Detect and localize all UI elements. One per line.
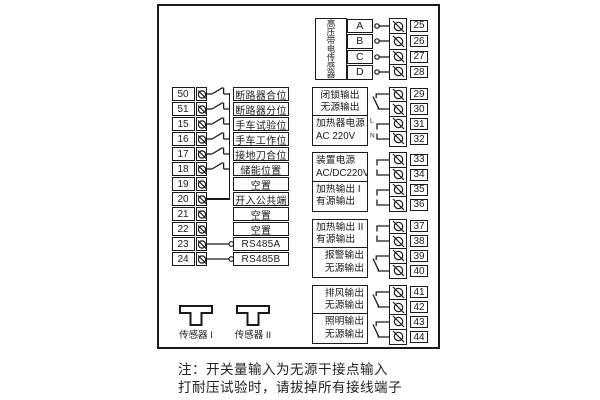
screw-terminal-icon [390,330,406,344]
output-label-line: 照明输出 [325,316,364,329]
terminal-number: 40 [410,265,428,277]
input-function-label: RS485B [233,252,289,266]
sensor-label: 传感器 II [231,327,275,341]
sensor-wire-icon [369,35,390,47]
input-function-label: 接地刀合位 [233,147,289,161]
screw-terminal-icon [390,132,406,146]
output-label-box: 报警输出无源输出 [312,247,368,278]
screw-terminal-icon [390,183,406,198]
screw-terminal-icon [390,168,406,183]
rs485-wire-icon [206,253,237,265]
wire-label: N [370,133,375,140]
screw-terminal-icon [390,315,406,330]
output-label-line: 无源输出 [325,300,364,313]
terminal-number: 30 [410,103,428,115]
screw-terminal-icon [390,153,406,168]
output-label-line: 加热器电源 [316,118,365,131]
rs485-wire-icon [206,238,237,250]
sensor-symbol-icon [179,305,213,326]
terminal-screw-column [389,18,407,80]
sensor-wire-icon [369,20,390,32]
screw-terminal-icon [390,234,406,249]
wire-hook-icon [368,152,389,183]
output-label-box: 加热器电源AC 220V [312,115,368,146]
output-label-box: 排风输出无源输出 [312,285,368,316]
screw-terminal-icon [390,197,406,211]
terminal-number: 26 [410,35,428,47]
output-label-line: 装置电源 [316,155,355,168]
terminal-screw-column [389,219,407,279]
terminal-screw-column [389,152,407,212]
terminal-number: 20 [172,192,195,206]
terminal-number: 31 [410,118,428,130]
terminal-number: 41 [410,286,428,298]
note-line: 打耐压试验时，请拔掉所有接线端子 [178,376,402,396]
terminal-number: 50 [172,87,195,101]
terminal-number: 19 [172,177,195,191]
output-label-line: 无源输出 [325,329,364,342]
wire-hook-icon [368,218,389,249]
input-function-label: 空置 [233,222,289,236]
screw-terminal-icon [390,286,406,301]
sensor-symbol-icon [236,305,270,326]
terminal-number: 42 [410,301,428,313]
terminal-screw-column [389,285,407,345]
output-label-line: 有源输出 [316,196,355,209]
input-function-label: 储能位置 [233,162,289,176]
output-label-line: AC/DC220V [316,168,368,181]
relay-contact-icon [368,86,389,117]
output-label-line: 无源输出 [320,102,359,115]
output-label-box: 闭锁输出无源输出 [312,87,368,118]
terminal-number: 24 [172,252,195,266]
screw-terminal-icon [390,88,406,103]
terminal-number: 28 [410,66,428,78]
terminal-number: 33 [410,154,428,166]
screw-terminal-icon [390,264,406,278]
input-function-label: 断路器合位 [233,87,289,101]
note-line: 注：开关量输入为无源干接点输入 [178,358,388,378]
screw-terminal-icon [390,50,406,65]
output-label-line: 闭锁输出 [320,90,359,103]
relay-contact-icon [368,284,389,315]
terminal-number: 29 [410,88,428,100]
common-bus-line [229,93,230,199]
terminal-number: 15 [172,117,195,131]
screw-terminal-icon [390,220,406,235]
terminal-number: 23 [172,237,195,251]
sensor-label: 传感器 I [174,327,218,341]
input-function-label: 开入公共端 [233,192,289,206]
output-label-line: 无源输出 [325,263,364,276]
terminal-number: 16 [172,132,195,146]
wire-hook-icon: LN [368,116,389,147]
output-label-box: 加热输出 I有源输出 [312,181,368,212]
wire-hook-icon [368,182,389,213]
terminal-screw-column [389,87,407,147]
output-label-box: 加热输出 II有源输出 [312,219,368,250]
screw-terminal-icon [390,102,406,117]
terminal-number: 25 [410,20,428,32]
input-function-label: 空置 [233,177,289,191]
output-label-line: 有源输出 [316,234,355,247]
output-label-line: 排风输出 [325,288,364,301]
screw-terminal-icon [390,117,406,132]
output-label-box: 装置电源AC/DC220V [312,152,368,183]
terminal-number: 36 [410,199,428,211]
screw-terminal-icon [196,222,207,236]
terminal-number: 44 [410,331,428,343]
screw-terminal-icon [196,207,207,221]
terminal-number: 32 [410,133,428,145]
terminal-number: 51 [172,102,195,116]
input-function-label: 手车试验位 [233,117,289,131]
terminal-wiring-diagram: 50断路器合位51断路器分位15手车试验位16手车工作位17接地刀合位18储能位… [0,0,600,400]
screw-terminal-icon [390,65,406,79]
sensor-wire-icon [369,51,390,63]
hv-sensor-label: 高压带电传感器 [327,19,336,79]
terminal-number: 27 [410,51,428,63]
screw-terminal-icon [390,19,406,34]
input-function-label: 手车工作位 [233,132,289,146]
wire-label: L [370,118,374,125]
input-function-label: 断路器分位 [233,102,289,116]
screw-terminal-icon [196,192,207,206]
hv-sensor-block: 高压带电传感器 [315,18,347,80]
relay-contact-icon [368,248,389,279]
terminal-number: 37 [410,220,428,232]
terminal-number: 18 [172,162,195,176]
output-label-line: 加热输出 I [316,184,361,197]
terminal-number: 35 [410,184,428,196]
output-label-box: 照明输出无源输出 [312,313,368,344]
terminal-number: 43 [410,316,428,328]
terminal-number: 17 [172,147,195,161]
terminal-number: 39 [410,250,428,262]
screw-terminal-icon [390,249,406,264]
sensor-wire-icon [369,66,390,78]
output-label-line: 加热输出 II [316,222,363,235]
terminal-number: 34 [410,169,428,181]
output-label-line: AC 220V [316,131,355,144]
screw-terminal-icon [390,34,406,49]
terminal-number: 21 [172,207,195,221]
output-label-line: 报警输出 [325,250,364,263]
screw-terminal-icon [196,177,207,191]
relay-contact-icon [368,314,389,345]
terminal-number: 38 [410,235,428,247]
input-function-label: 空置 [233,207,289,221]
input-function-label: RS485A [233,237,289,251]
switch-contact-icon [206,160,230,178]
terminal-number: 22 [172,222,195,236]
common-wire-line [207,198,229,199]
screw-terminal-icon [390,300,406,315]
